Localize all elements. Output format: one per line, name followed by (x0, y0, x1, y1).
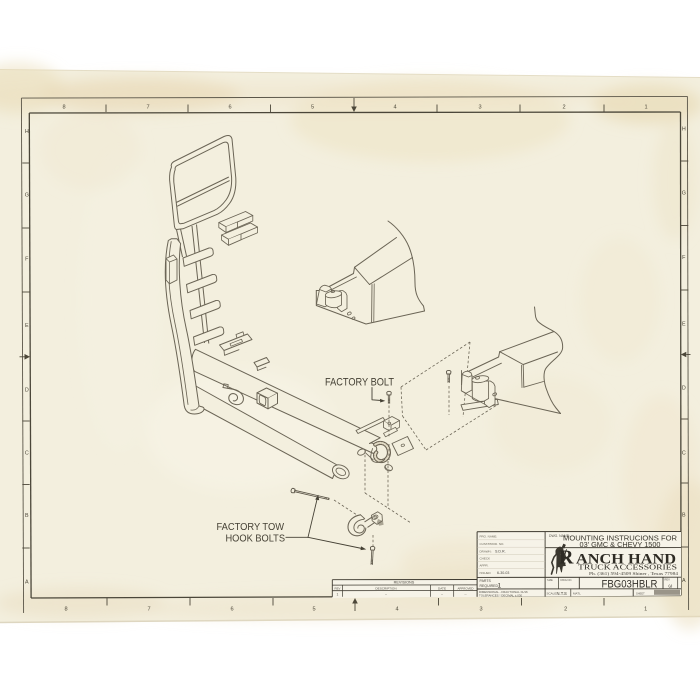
svg-text:03' GMC & CHEVY 1500: 03' GMC & CHEVY 1500 (580, 540, 661, 549)
svg-text:FACTORY BOLT: FACTORY BOLT (325, 376, 394, 388)
svg-text:CHECK: CHECK (480, 557, 491, 561)
svg-text:R: R (559, 547, 574, 569)
svg-text:A: A (682, 578, 686, 584)
svg-text:CUST/PROD. NO.: CUST/PROD. NO. (480, 542, 505, 546)
svg-text:DWG NO.: DWG NO. (561, 578, 573, 582)
svg-text:8: 8 (62, 105, 65, 111)
svg-text:5: 5 (312, 607, 315, 613)
svg-text:REV: REV (335, 587, 341, 591)
svg-text:FBG03HBLR: FBG03HBLR (602, 578, 658, 590)
svg-text:DRAWN:: DRAWN: (480, 550, 492, 554)
svg-text:5: 5 (311, 105, 314, 111)
svg-text:6: 6 (228, 105, 231, 111)
svg-text:A: A (25, 580, 29, 586)
svg-text:3: 3 (479, 607, 482, 613)
svg-text:6-30-03: 6-30-03 (497, 571, 509, 575)
svg-text:G: G (25, 193, 29, 199)
svg-text:1: 1 (644, 607, 647, 613)
svg-text:S.D.R.: S.D.R. (495, 550, 506, 554)
svg-text:--: -- (385, 592, 387, 596)
svg-text:--: -- (441, 592, 443, 596)
svg-text:B: B (682, 513, 686, 519)
svg-text:D: D (25, 388, 29, 394)
svg-text:ISSUED: ISSUED (480, 571, 492, 575)
svg-text:1: 1 (337, 592, 339, 596)
svg-text:1: 1 (498, 583, 502, 590)
svg-text:REQUIRED:: REQUIRED: (480, 584, 499, 588)
svg-text:C: C (682, 451, 686, 457)
svg-text:DESCRIPTION: DESCRIPTION (375, 587, 396, 591)
svg-text:E: E (25, 323, 29, 329)
svg-text:APPR.: APPR. (480, 564, 489, 568)
svg-text:4: 4 (393, 105, 396, 111)
svg-text:ω: ω (668, 584, 672, 590)
svg-text:7: 7 (147, 607, 150, 613)
svg-text:D: D (682, 386, 686, 392)
svg-text:H: H (25, 129, 29, 135)
svg-text:C: C (25, 451, 29, 457)
svg-text:1: 1 (644, 105, 647, 111)
svg-text:HOOK BOLTS: HOOK BOLTS (226, 533, 286, 544)
svg-text:SIZE: SIZE (547, 578, 553, 582)
svg-text:PARTS: PARTS (480, 579, 492, 583)
svg-text:E: E (682, 322, 686, 328)
svg-text:B: B (25, 513, 29, 519)
svg-text:REV: REV (665, 578, 671, 582)
svg-text:FACTORY TOW: FACTORY TOW (217, 522, 285, 533)
svg-text:SCALE: SCALE (547, 592, 557, 596)
svg-text:N.T.S: N.T.S (557, 591, 567, 596)
svg-text:DATE: DATE (438, 587, 446, 591)
svg-text:2: 2 (564, 607, 567, 613)
svg-text:8: 8 (64, 607, 67, 613)
svg-text:6: 6 (230, 607, 233, 613)
svg-text:TOLERANCES ° DECIMAL ±.030: TOLERANCES ° DECIMAL ±.030 (479, 594, 522, 598)
svg-text:4: 4 (395, 607, 398, 613)
svg-text:APPROVED: APPROVED (457, 587, 473, 591)
svg-text:7: 7 (146, 105, 149, 111)
svg-text:3: 3 (478, 105, 481, 111)
svg-text:PRO. NAME:: PRO. NAME: (480, 535, 498, 539)
svg-text:MATL: MATL (573, 592, 581, 596)
svg-text:--: -- (464, 592, 466, 596)
svg-text:H: H (682, 127, 686, 133)
svg-text:SHEET: SHEET (636, 592, 645, 596)
svg-text:2: 2 (562, 105, 565, 111)
svg-text:G: G (682, 191, 686, 197)
svg-text:REVISIONS: REVISIONS (394, 581, 415, 585)
